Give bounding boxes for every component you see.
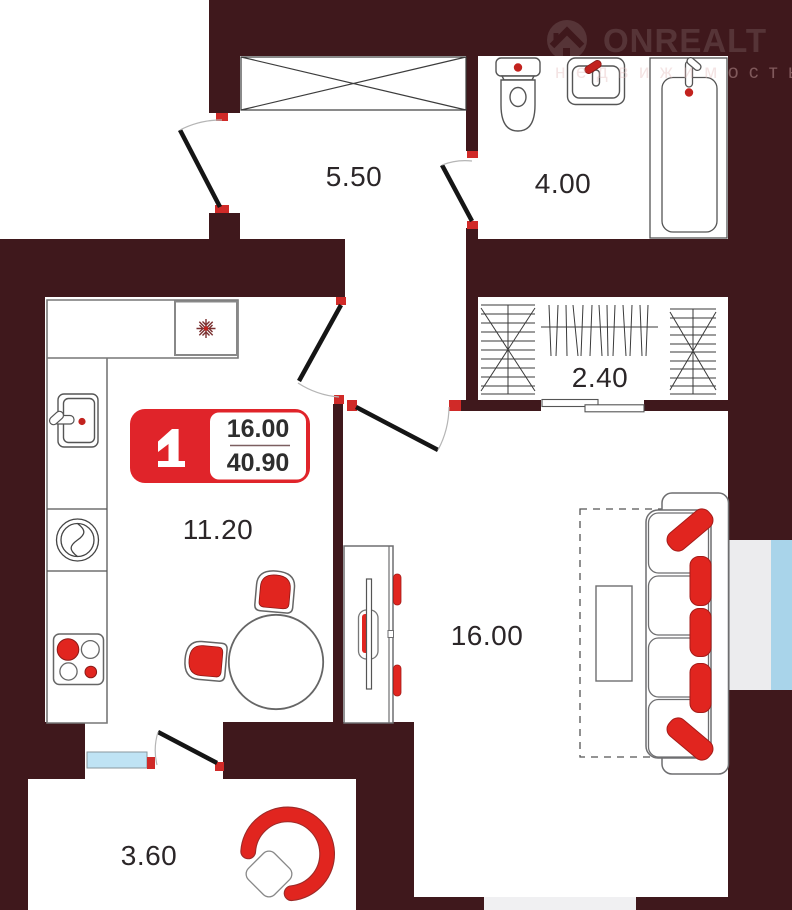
svg-text:11.20: 11.20 xyxy=(183,514,254,545)
svg-text:3.60: 3.60 xyxy=(121,840,178,871)
svg-text:недвижимость: недвижимость xyxy=(555,62,792,83)
svg-text:5.50: 5.50 xyxy=(326,161,383,192)
svg-text:16.00: 16.00 xyxy=(227,415,290,443)
svg-text:4.00: 4.00 xyxy=(535,168,592,199)
svg-text:16.00: 16.00 xyxy=(451,620,524,651)
svg-text:ONREALT: ONREALT xyxy=(603,22,767,59)
svg-text:2.40: 2.40 xyxy=(572,362,629,393)
svg-text:40.90: 40.90 xyxy=(227,449,290,477)
